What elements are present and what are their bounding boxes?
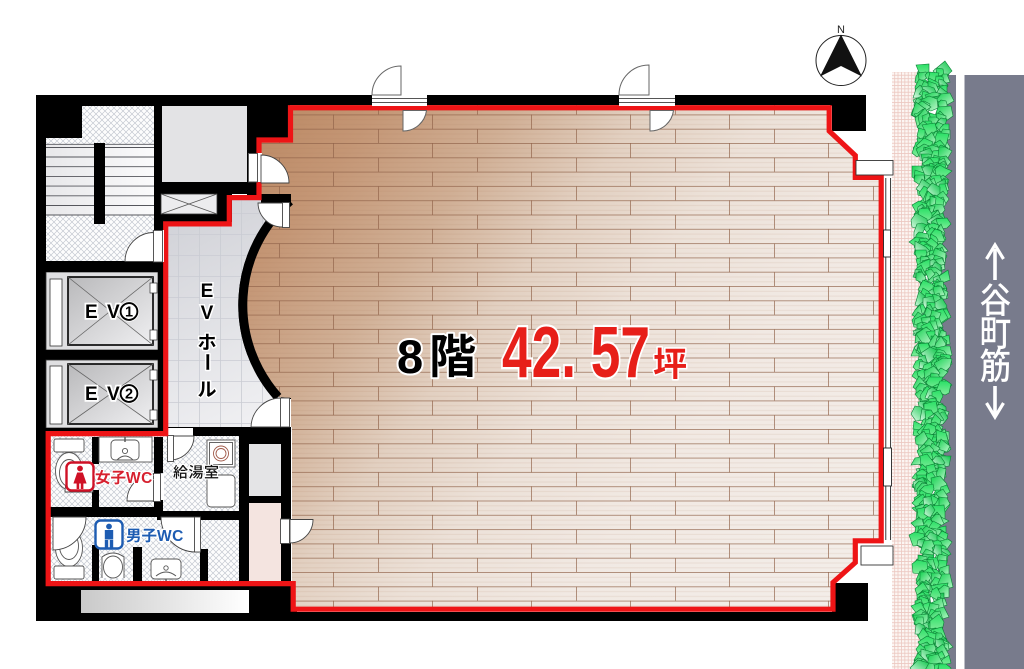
svg-text:42. 57: 42. 57 [502,313,650,393]
svg-text:2: 2 [125,387,133,403]
svg-text:WC: WC [157,528,184,545]
svg-text:1: 1 [125,305,133,321]
svg-text:N: N [837,24,845,36]
svg-text:V: V [107,302,120,323]
svg-text:V: V [107,384,120,405]
svg-text:E: E [85,384,98,405]
svg-text:V: V [201,303,214,324]
svg-text:8: 8 [397,330,423,383]
svg-text:E: E [201,281,214,302]
svg-text:E: E [85,302,98,323]
svg-text:WC: WC [126,470,153,487]
